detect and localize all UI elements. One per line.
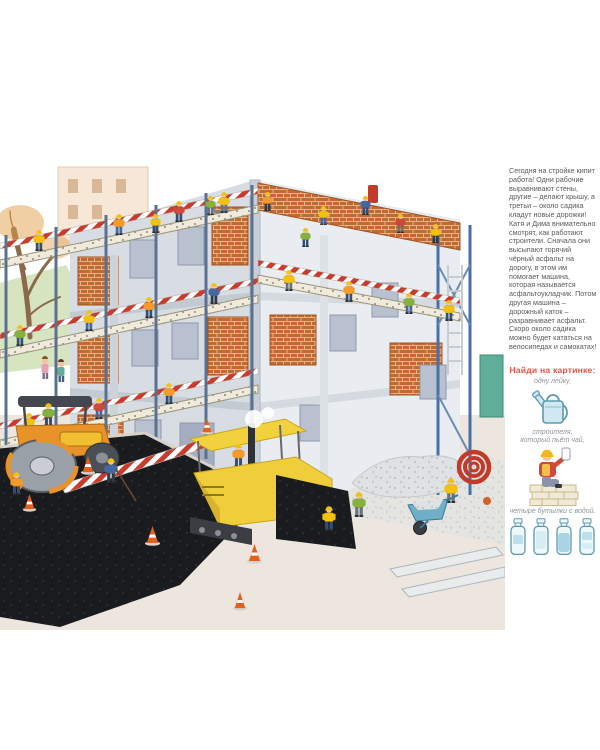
find-item-caption: одну лейку, (505, 378, 600, 386)
story-text: Сегодня на стройке кипит работа! Одни ра… (505, 165, 600, 352)
watering-can-icon (531, 387, 575, 427)
find-heading: Найди на картинке: (505, 365, 600, 375)
find-item-bottles: четыре бутылки с водой. (505, 508, 600, 555)
find-item-builder: строителя, который пьёт чай, (505, 429, 600, 506)
sidebar: Сегодня на стройке кипит работа! Одни ра… (505, 165, 600, 630)
water-bottle-icon (511, 518, 525, 554)
water-bottle-icon (534, 518, 548, 554)
water-bottle-icon (580, 518, 594, 554)
find-item-caption: строителя, который пьёт чай, (505, 429, 600, 445)
site-cabin (480, 355, 503, 417)
find-item-caption: четыре бутылки с водой. (505, 508, 600, 516)
water-bottles-icon (508, 518, 598, 556)
book-page: Сегодня на стройке кипит работа! Одни ра… (0, 0, 600, 750)
find-item-watering-can: одну лейку, (505, 378, 600, 427)
construction-scene-illustration (0, 165, 505, 630)
gas-cylinder (368, 185, 378, 203)
water-bottle-icon (557, 518, 571, 554)
builder-drinking-tea-icon (524, 446, 582, 506)
